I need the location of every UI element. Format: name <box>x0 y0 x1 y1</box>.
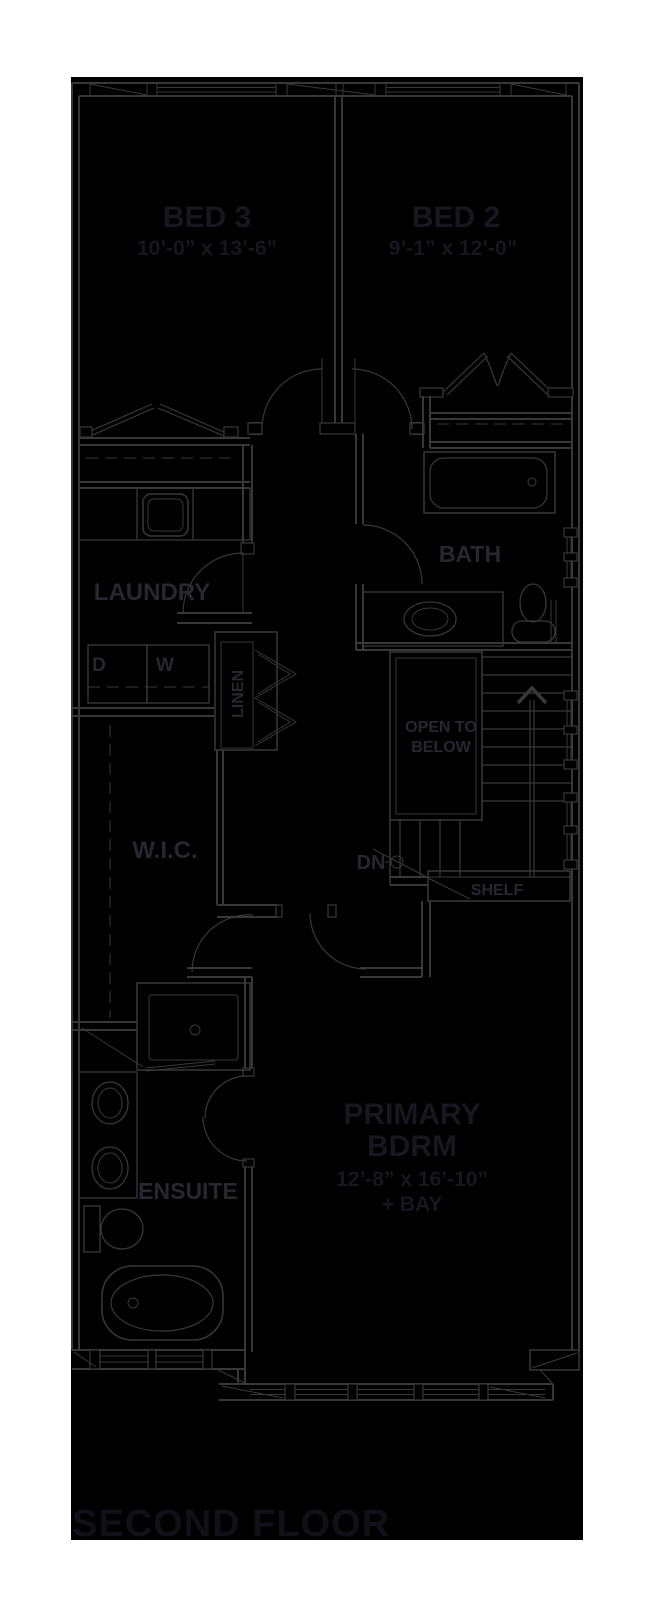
open-below-label-line1: OPEN TO <box>405 719 477 736</box>
washer-label: W <box>156 655 174 676</box>
bed2-label: BED 2 <box>412 201 500 234</box>
primary-dims-bay: + BAY <box>382 1193 443 1216</box>
bath-window <box>564 528 577 587</box>
open-below-label-line2: BELOW <box>411 739 471 756</box>
dryer-label: D <box>92 655 106 676</box>
primary-dims: 12’-8” x 16’-10” <box>336 1168 488 1191</box>
laundry-label: LAUNDRY <box>94 579 210 606</box>
primary-label-line1: PRIMARY <box>343 1098 480 1131</box>
wic-label: W.I.C. <box>132 837 197 864</box>
bed3-label: BED 3 <box>163 201 251 234</box>
floor-title: SECOND FLOOR <box>72 1503 390 1545</box>
shelf-label: SHELF <box>471 882 524 899</box>
bed2-dims: 9’-1” x 12’-0” <box>389 237 517 260</box>
ensuite-label: ENSUITE <box>138 1178 238 1204</box>
down-label: DN <box>357 852 386 874</box>
bath-label: BATH <box>439 541 501 567</box>
bed3-dims: 10’-0” x 13’-6” <box>137 237 277 260</box>
primary-label-line2: BDRM <box>367 1130 457 1163</box>
floorplan-drawing: BED 3 10’-0” x 13’-6” BED 2 9’-1” x 12’-… <box>0 0 650 1620</box>
plan-canvas <box>71 77 583 1540</box>
floorplan-page: BED 3 10’-0” x 13’-6” BED 2 9’-1” x 12’-… <box>0 0 650 1620</box>
linen-label: LINEN <box>230 670 247 718</box>
